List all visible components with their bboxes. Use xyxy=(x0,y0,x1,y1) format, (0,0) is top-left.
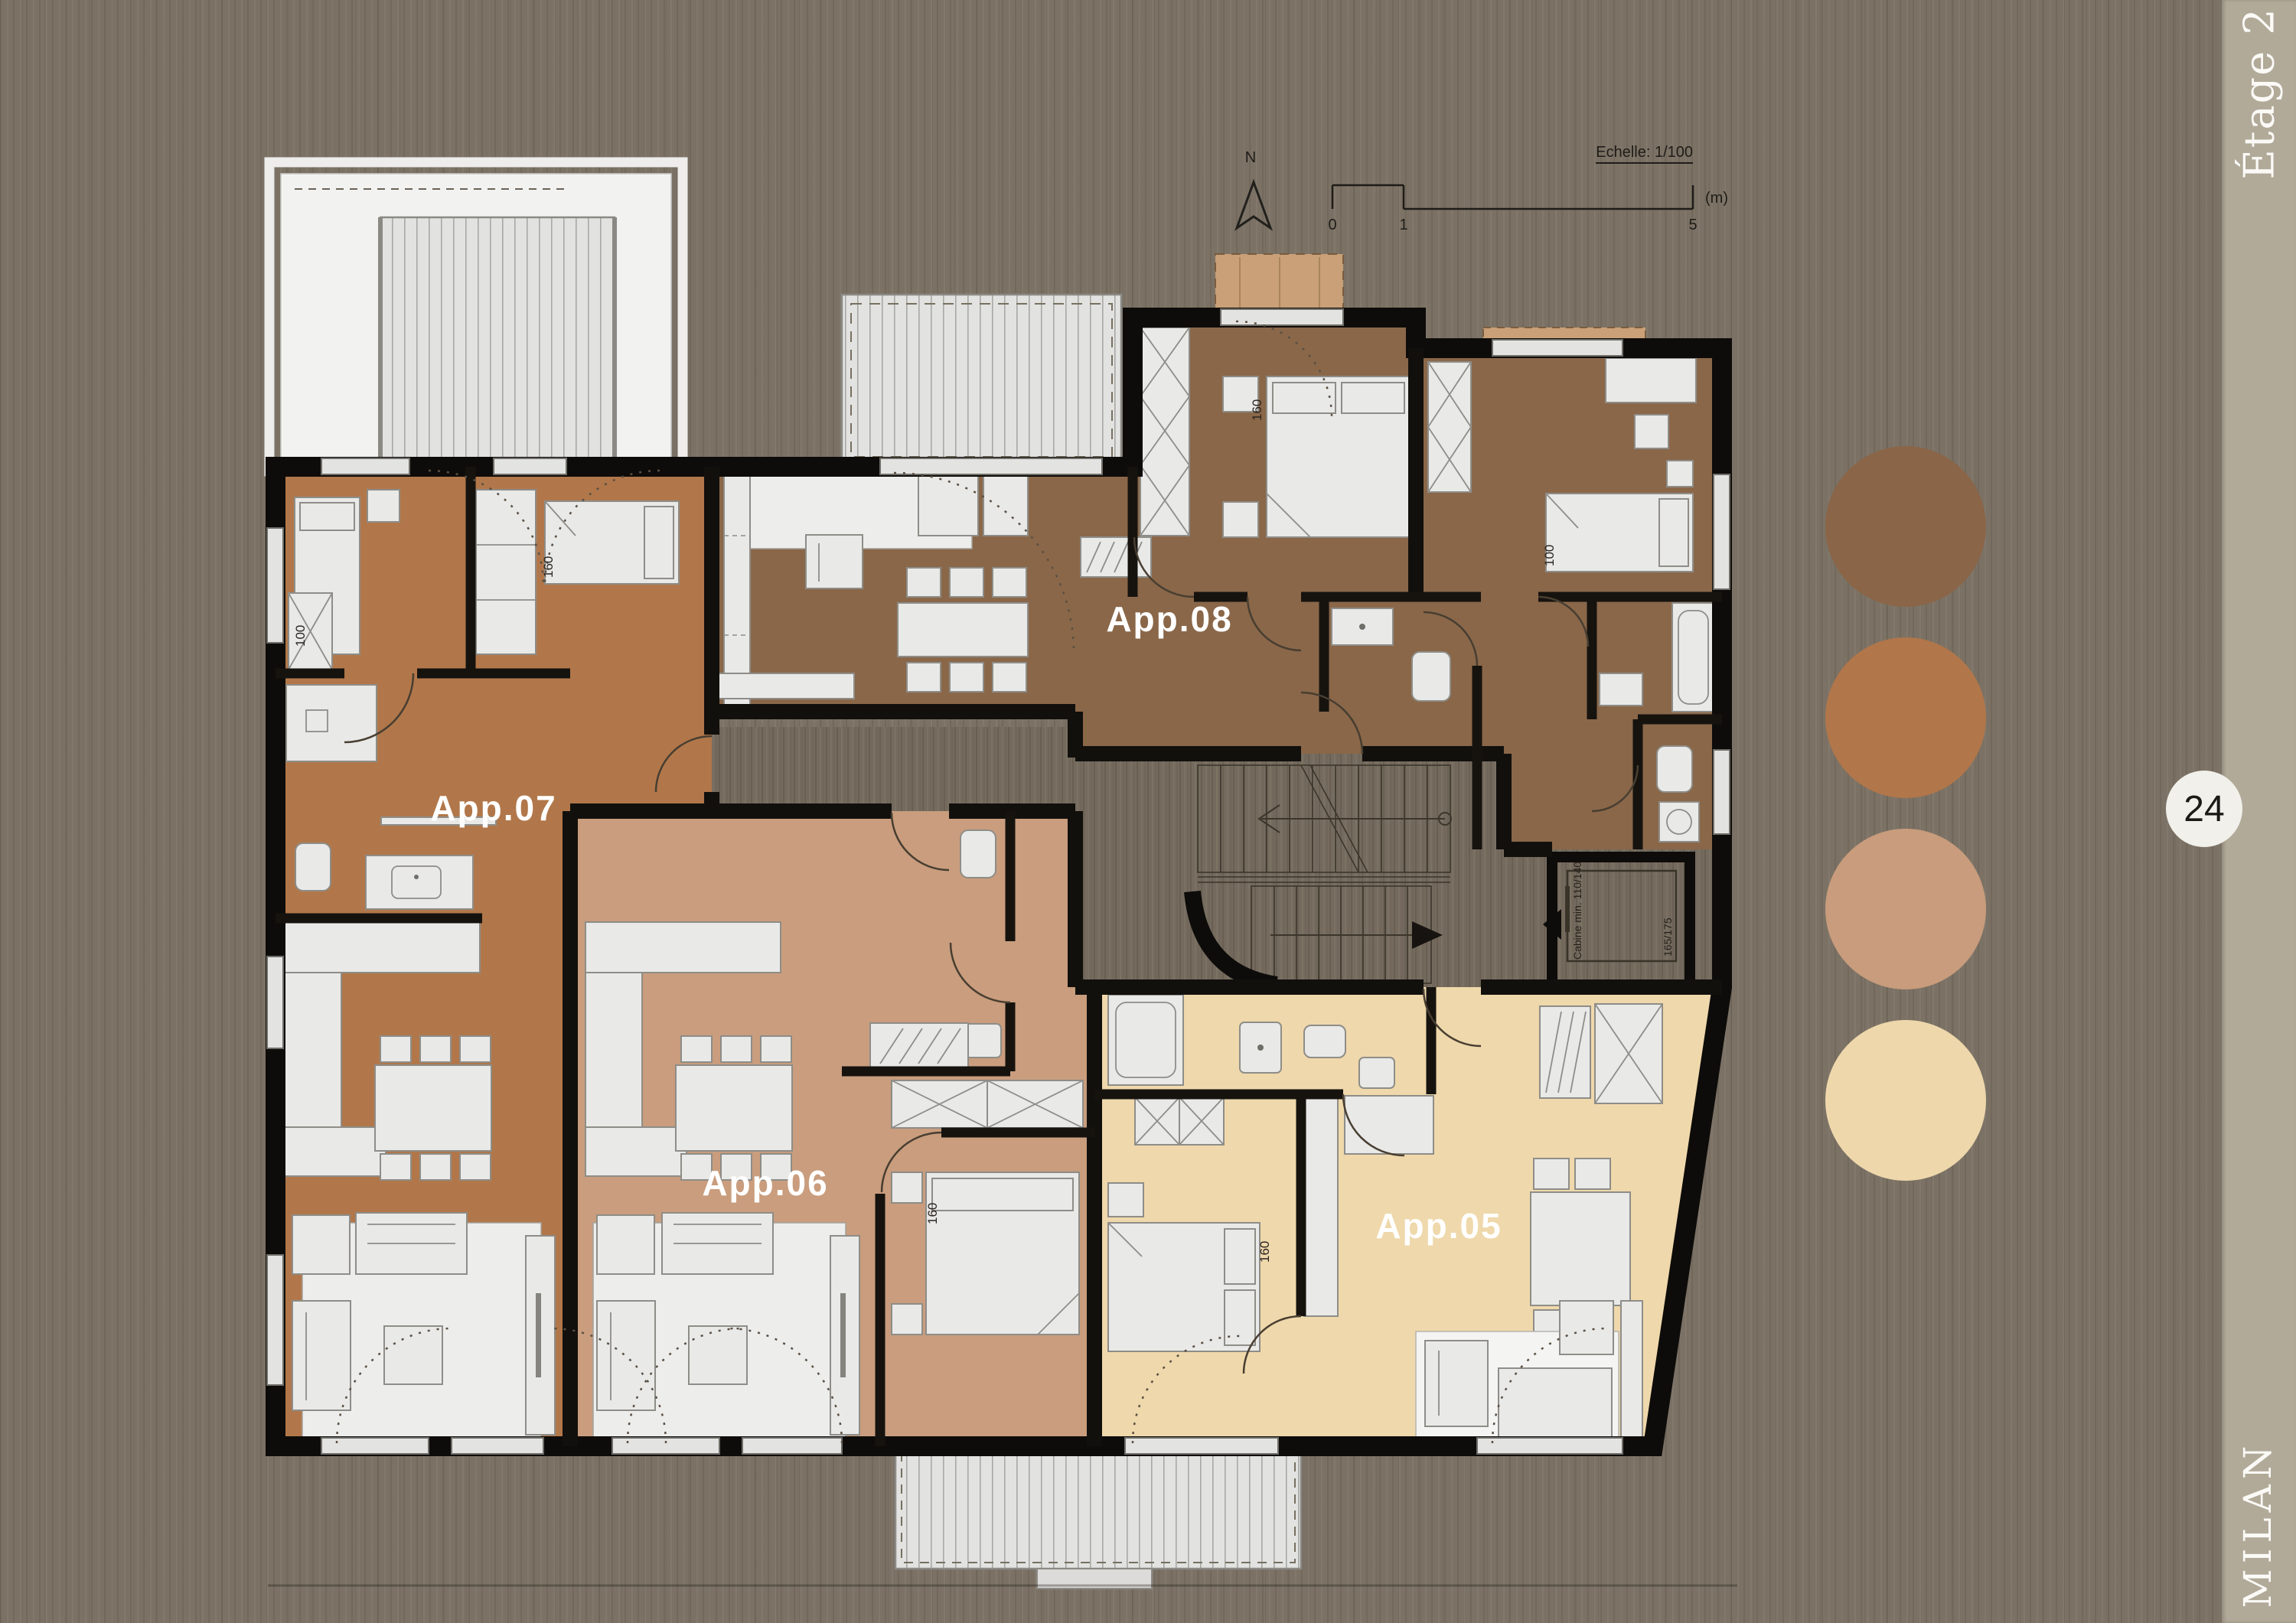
north-label: N xyxy=(1245,149,1256,166)
brand-logo: MILAN xyxy=(2236,1440,2280,1608)
swatch-app-08 xyxy=(1825,446,1986,607)
balcony-bottom xyxy=(268,1448,1737,1589)
terrace-top-left xyxy=(269,162,683,471)
floorplan-page: { "page": { "floor_label": "Étage 2", "p… xyxy=(0,0,2296,1623)
scale-tick-5: 5 xyxy=(1688,217,1697,233)
swatch-app-06 xyxy=(1825,829,1986,989)
page-number: 24 xyxy=(2183,788,2224,830)
scale-unit: (m) xyxy=(1705,190,1728,207)
bed-size-app07-large: 160 xyxy=(541,556,556,578)
north-arrow-icon xyxy=(1237,182,1270,228)
bed-size-app08-large: 160 xyxy=(1250,399,1264,421)
page-number-badge: 24 xyxy=(2166,771,2242,847)
label-app-07: App.07 xyxy=(430,788,556,828)
floor-title: Étage 2 xyxy=(2236,7,2284,179)
bed-size-app07-small: 100 xyxy=(293,625,308,647)
label-app-05: App.05 xyxy=(1375,1206,1502,1246)
floor-plan-drawing: Cabine min. 110/140 165/175 xyxy=(0,0,2296,1623)
bed-size-app05: 160 xyxy=(1257,1241,1272,1263)
bed-size-app06: 160 xyxy=(925,1203,940,1224)
swatch-app-07 xyxy=(1825,637,1986,798)
scale-tick-0: 0 xyxy=(1328,217,1336,233)
bed-size-app08-small: 100 xyxy=(1542,545,1557,566)
compass: N xyxy=(1237,149,1270,228)
swatch-app-05 xyxy=(1825,1020,1986,1181)
scale-bar: Echelle: 1/100 0 1 5 (m) xyxy=(1328,144,1728,233)
balcony-top-middle xyxy=(842,295,1121,467)
elevator-cabin-label: Cabine min. 110/140 xyxy=(1571,862,1583,960)
label-app-08: App.08 xyxy=(1106,599,1232,639)
label-app-06: App.06 xyxy=(702,1163,828,1203)
color-legend xyxy=(1825,446,1986,1181)
scale-label: Echelle: 1/100 xyxy=(1596,144,1693,161)
scale-tick-1: 1 xyxy=(1399,217,1407,233)
elevator-shaft-label: 165/175 xyxy=(1662,917,1674,957)
